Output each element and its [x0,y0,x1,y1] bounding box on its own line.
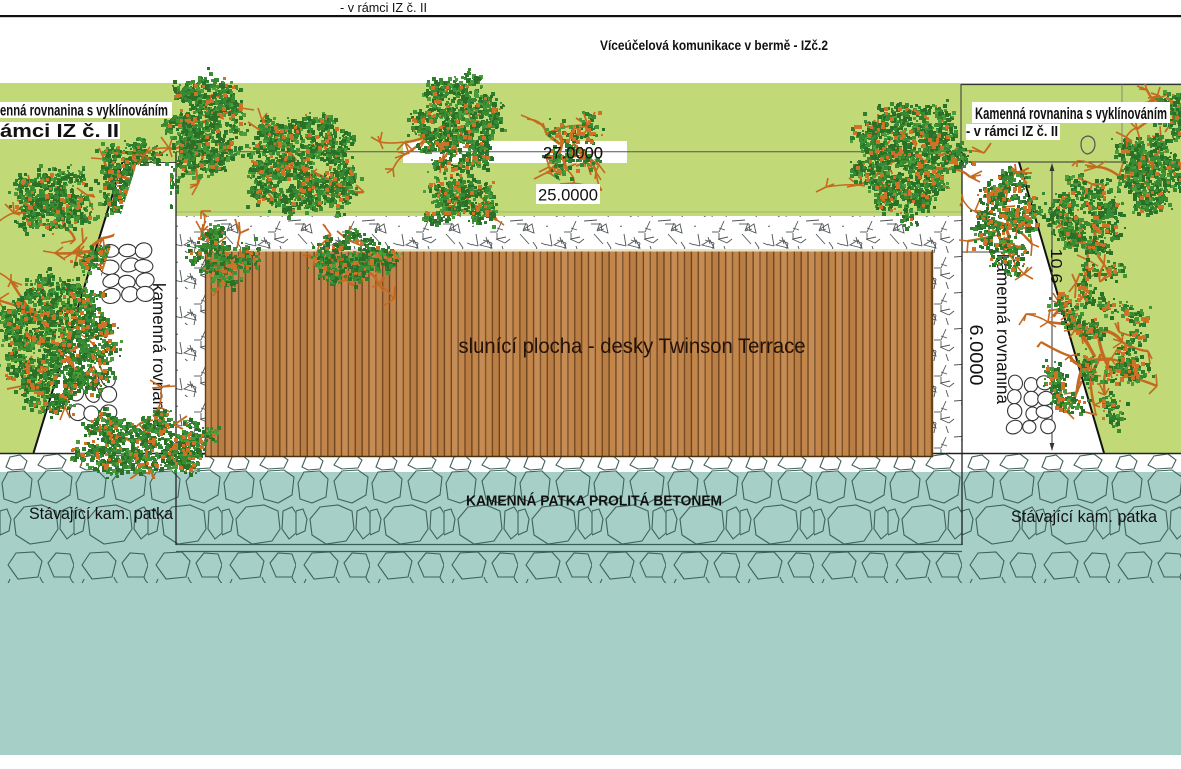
svg-text:27.0000: 27.0000 [543,144,603,163]
svg-text:- v rámci IZ č. II: - v rámci IZ č. II [966,123,1058,140]
svg-text:- v rámci IZ č. II: - v rámci IZ č. II [340,0,427,15]
svg-text:Stávající kam. patka: Stávající kam. patka [29,504,174,523]
svg-text:Kamenná rovnanina s vyklínován: Kamenná rovnanina s vyklínováním [975,104,1167,123]
svg-text:ámci IZ č. II: ámci IZ č. II [0,121,119,141]
svg-text:Stávající kam. patka: Stávající kam. patka [1011,507,1158,526]
svg-text:Víceúčelová komunikace v bermě: Víceúčelová komunikace v bermě - IZč.2 [600,37,828,53]
svg-text:6.0000: 6.0000 [966,325,986,386]
svg-text:25.0000: 25.0000 [538,186,598,205]
svg-text:slunící plocha - desky Twinson: slunící plocha - desky Twinson Terrace [459,335,806,358]
svg-text:KAMENNÁ PATKA PROLITÁ BETONEM: KAMENNÁ PATKA PROLITÁ BETONEM [466,493,722,510]
svg-text:enná rovnanina s vyklínováním: enná rovnanina s vyklínováním [0,103,168,120]
svg-text:10.6: 10.6 [1047,249,1064,284]
